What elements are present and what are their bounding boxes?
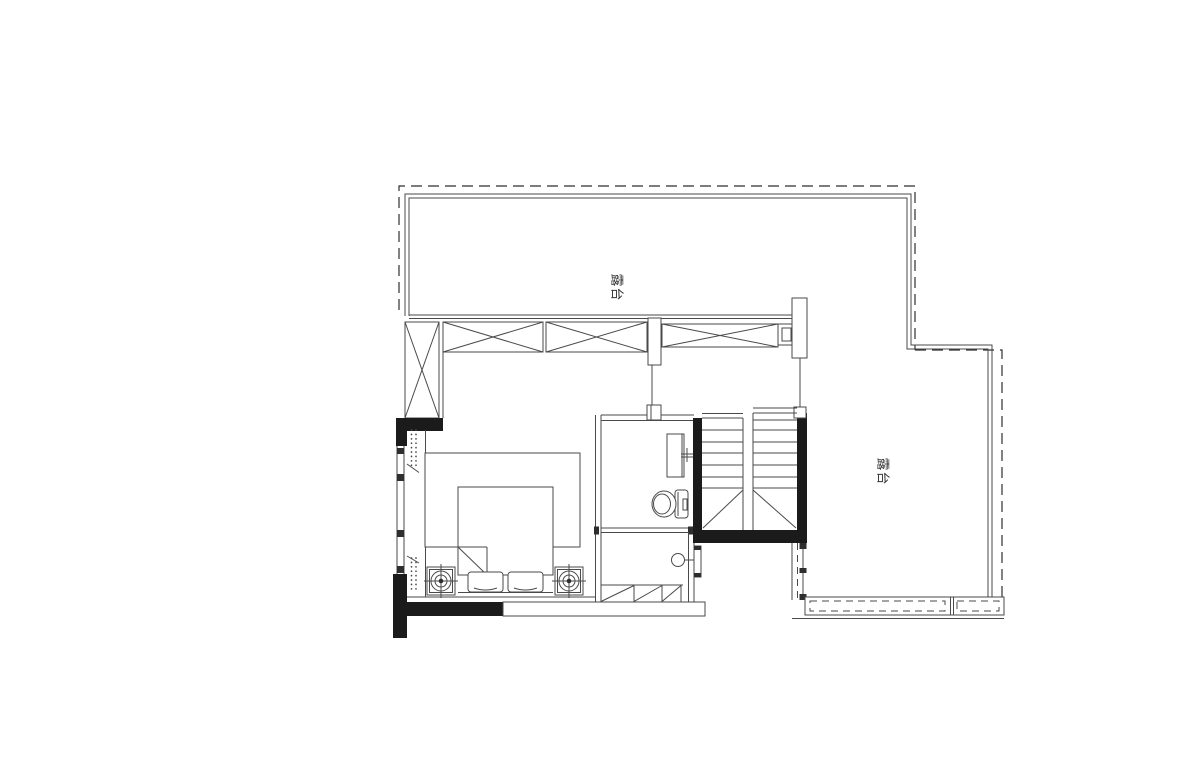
duvet (458, 487, 553, 575)
bathroom (594, 405, 694, 535)
wall-segment (396, 431, 407, 446)
lamp-icon (439, 579, 444, 584)
pier (792, 298, 807, 358)
wall-segment (406, 602, 503, 616)
pillow (468, 572, 503, 592)
lamp-icon (567, 579, 572, 584)
low-wall (503, 602, 705, 616)
shower-room (601, 532, 701, 602)
staircase (693, 407, 807, 543)
nightstand-left (424, 564, 458, 598)
terrace-edge (409, 315, 792, 319)
drain-icon (672, 554, 685, 567)
wall-segment (396, 418, 443, 431)
toilet (652, 490, 688, 518)
curtain (407, 430, 419, 590)
door-leaf (694, 546, 701, 577)
duct (647, 405, 661, 420)
understair-window (792, 543, 807, 600)
room-label-terrace-right: 露台 (864, 450, 904, 492)
plan-linework (0, 0, 1200, 776)
stair-wall (693, 418, 702, 530)
room-label-terrace-top: 露台 (598, 266, 638, 308)
nightstand-right (552, 564, 586, 598)
stair-wall (797, 413, 807, 530)
stair-treads-right (753, 420, 797, 488)
pillow (508, 572, 543, 592)
vanity (667, 434, 684, 477)
column (648, 318, 661, 365)
stair-wall (693, 530, 807, 543)
floor-plan: 露台 露台 (0, 0, 1200, 776)
louver-strip (601, 585, 683, 602)
wall-segment (393, 574, 407, 638)
stair-treads-left (702, 430, 743, 488)
parapet-band (792, 597, 1004, 619)
west-window (397, 446, 404, 574)
